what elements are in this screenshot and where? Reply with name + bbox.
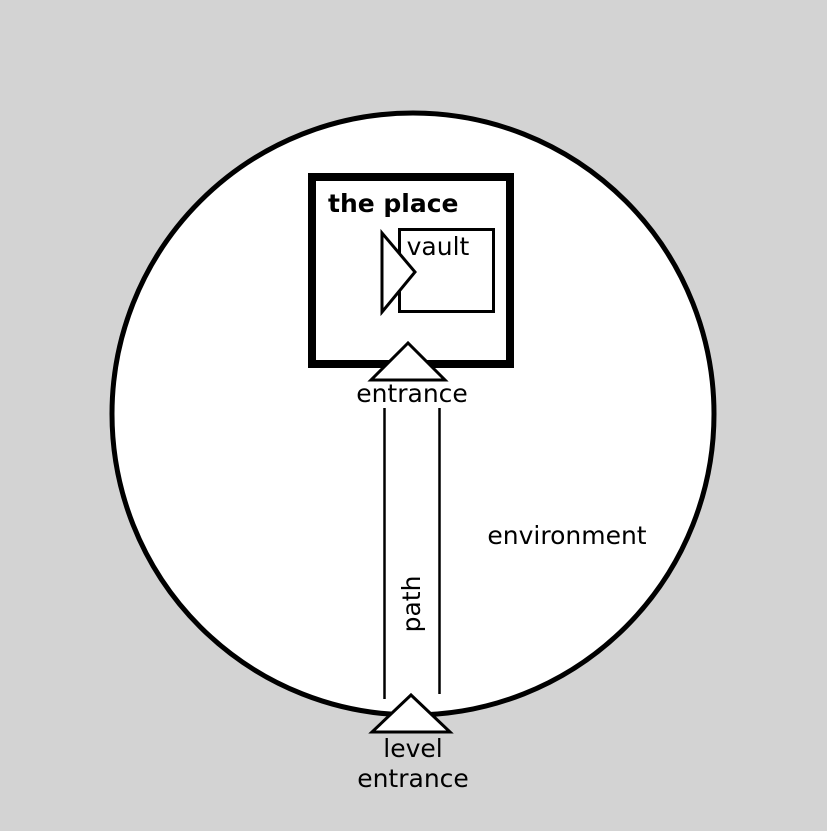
level-map-diagram: the place vault entrance environment pat… [0,0,827,831]
level-entrance-label-line1: level [383,734,442,763]
vault-label: vault [407,232,470,261]
entrance-label: entrance [356,379,468,408]
environment-label: environment [487,521,646,550]
path-label: path [397,576,426,633]
level-entrance-label-line2: entrance [357,764,469,793]
place-label: the place [328,189,459,218]
